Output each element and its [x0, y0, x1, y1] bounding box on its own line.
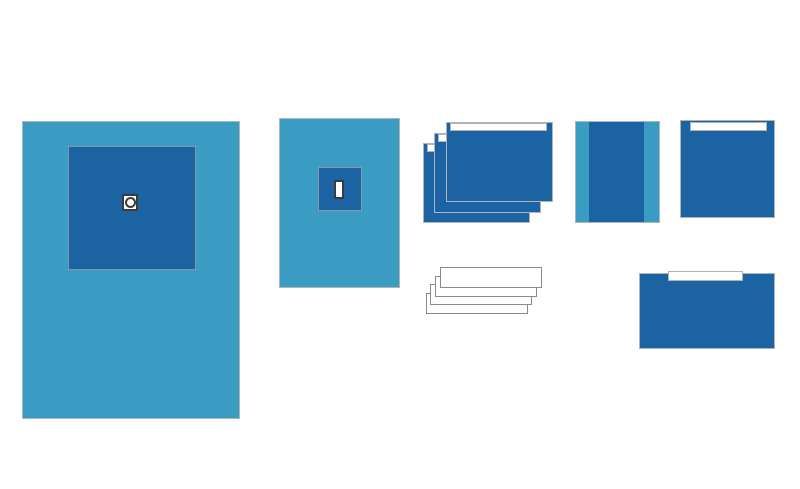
hand-towel-stack — [426, 267, 543, 315]
adhesive-strip — [668, 271, 743, 281]
reinforcement-panel-small — [318, 167, 362, 211]
adhesive-strip — [450, 123, 547, 131]
surgical-drape-pack-illustration — [0, 0, 800, 489]
large-fenestrated-drape — [22, 121, 240, 419]
fenestration-port — [122, 194, 138, 211]
side-drape-front — [446, 122, 553, 202]
slot-fenestration — [334, 180, 344, 199]
reinforcement-panel — [68, 146, 196, 270]
adhesive-side-drape-stack — [423, 122, 554, 225]
fenestration-hole-icon — [125, 197, 136, 208]
hand-towel — [440, 267, 542, 288]
adhesive-drape-square — [680, 120, 775, 218]
banded-drape — [575, 121, 660, 223]
small-fenestrated-drape — [279, 118, 400, 288]
center-panel — [589, 122, 644, 222]
adhesive-strip — [690, 122, 767, 131]
adhesive-drape-wide — [639, 273, 775, 349]
